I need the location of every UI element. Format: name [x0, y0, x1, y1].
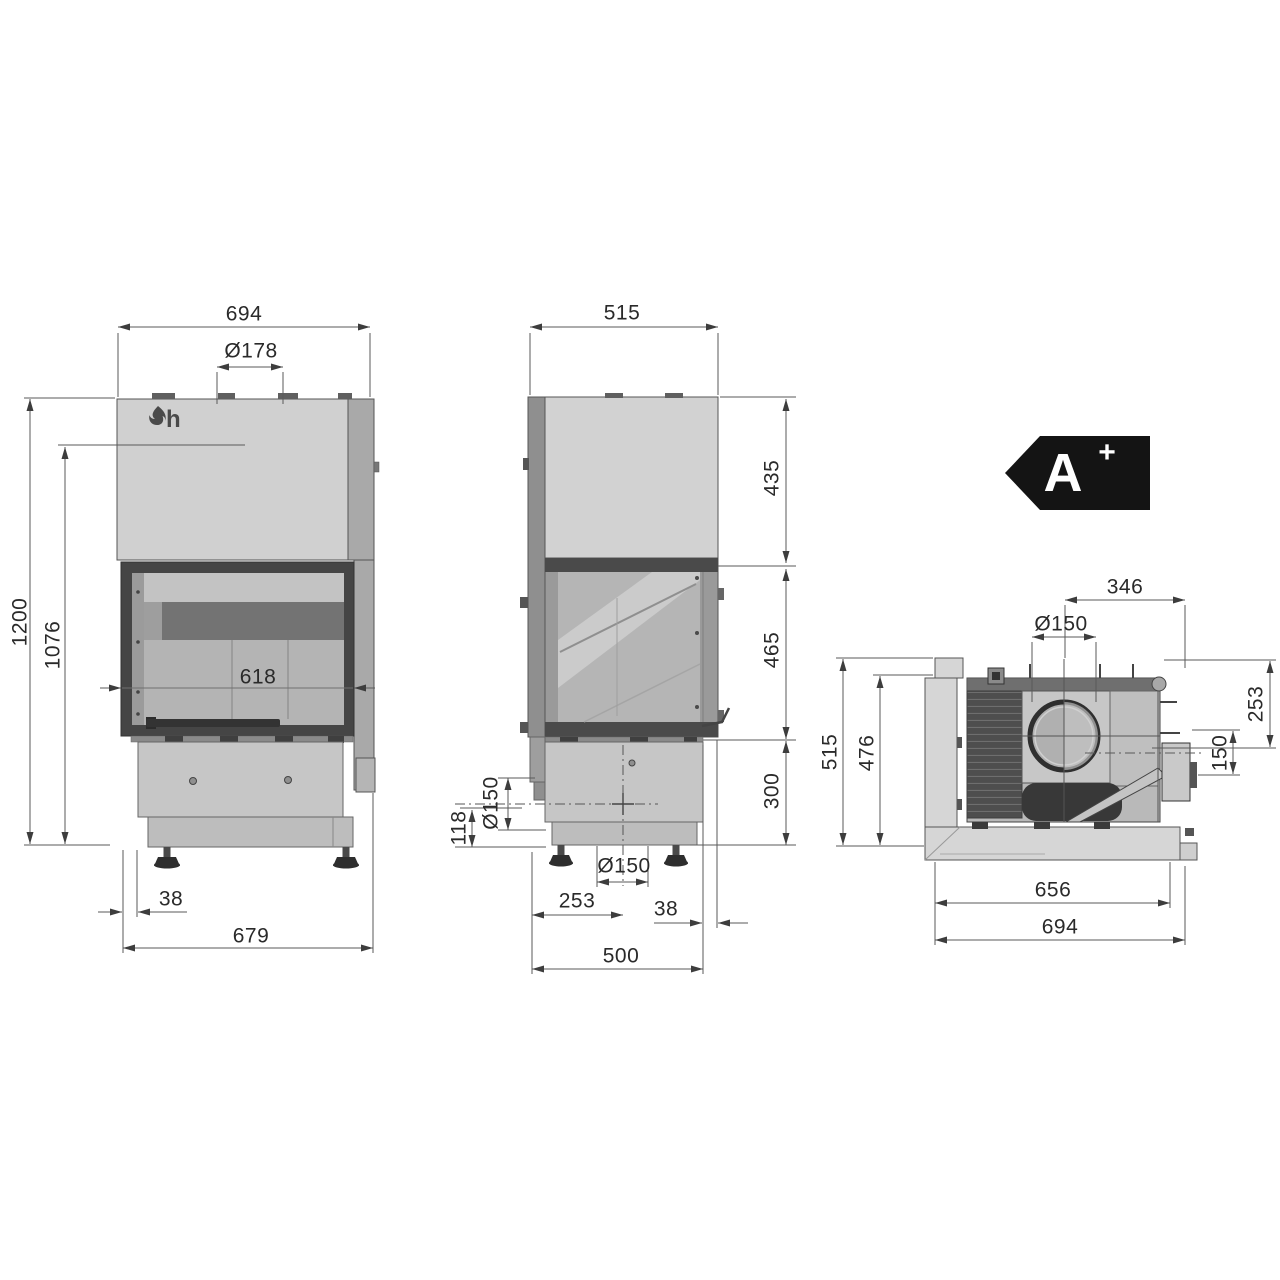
dim-front-overall-width: 694 [226, 304, 263, 325]
front-view-body [117, 393, 379, 869]
dim-side-rear-outlet-diameter: Ø150 [481, 776, 502, 829]
dim-top-rear-section: 253 [1246, 686, 1267, 723]
dim-front-left-offset: 38 [159, 889, 183, 910]
dim-side-hood-section: 435 [762, 460, 783, 497]
dim-side-glass-section: 465 [762, 632, 783, 669]
dim-top-flue-to-back: 346 [1107, 577, 1144, 598]
technical-drawing-page: h 694 Ø178 1200 1076 618 38 679 515 435 … [0, 0, 1280, 1280]
energy-grade: A [1044, 446, 1083, 500]
dim-top-overall-depth: 515 [820, 734, 841, 771]
brand-logo: h [148, 405, 181, 429]
energy-grade-plus: + [1098, 438, 1116, 468]
dim-front-overall-height: 1200 [10, 598, 31, 647]
dim-side-rear-offset: 38 [654, 899, 678, 920]
dim-front-base-width: 679 [233, 926, 270, 947]
dim-front-glass-width: 618 [240, 667, 277, 688]
dim-top-overall-width: 694 [1042, 917, 1079, 938]
dim-side-rear-outlet-height: 118 [449, 811, 470, 846]
dim-top-body-depth: 476 [857, 735, 878, 772]
brand-letter: h [166, 410, 181, 429]
dim-side-base-depth: 500 [603, 946, 640, 967]
flame-icon [148, 405, 166, 429]
dim-front-body-height: 1076 [43, 621, 64, 670]
dim-side-overall-depth: 515 [604, 303, 641, 324]
energy-rating-label: A + [1005, 436, 1150, 510]
dim-top-body-width: 656 [1035, 880, 1072, 901]
top-view-body [925, 658, 1197, 860]
dim-side-bottom-outlet-diameter: Ø150 [597, 856, 650, 877]
dim-front-flue-diameter: Ø178 [224, 341, 277, 362]
dim-top-flue-diameter: Ø150 [1034, 614, 1087, 635]
dim-side-base-section: 300 [762, 773, 783, 810]
dim-side-bottom-outlet-offset: 253 [559, 891, 596, 912]
dim-top-rear-outlet: 150 [1210, 735, 1231, 772]
fireplace-drawing-linework [0, 0, 1280, 1280]
